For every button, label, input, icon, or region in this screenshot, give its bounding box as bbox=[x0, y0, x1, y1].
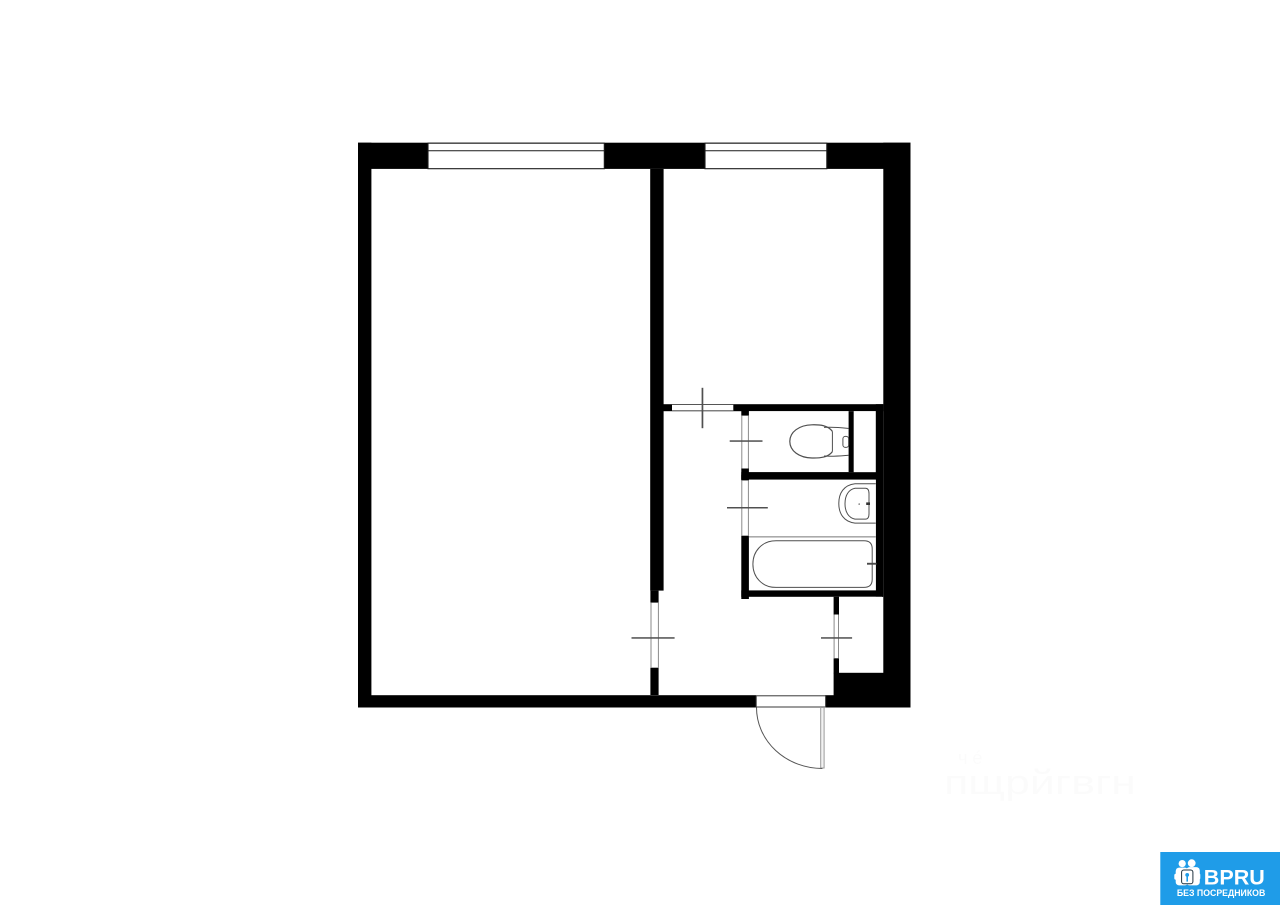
svg-text:БЕЗ ПОСРЕДНИКОВ: БЕЗ ПОСРЕДНИКОВ bbox=[1177, 888, 1265, 899]
svg-text:пщрйгвгн: пщрйгвгн bbox=[944, 764, 1136, 802]
svg-text:ч é: ч é bbox=[958, 748, 982, 768]
svg-text:BPRU: BPRU bbox=[1204, 865, 1265, 890]
